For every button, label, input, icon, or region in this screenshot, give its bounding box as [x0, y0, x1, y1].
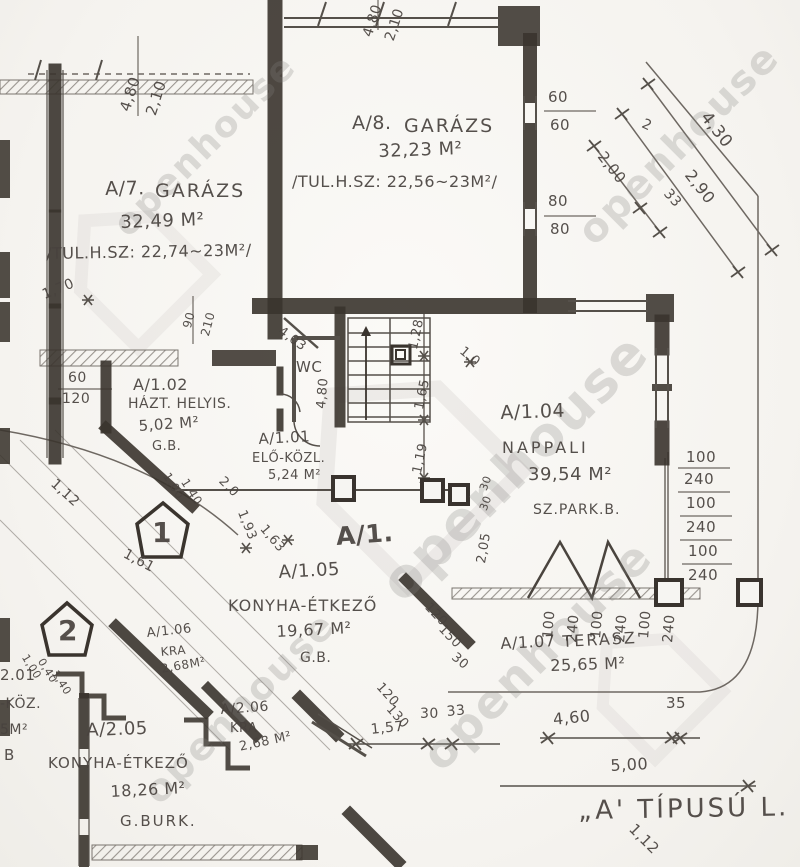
dim-right-col: 100	[688, 542, 718, 560]
dim-a8-window: 80	[548, 192, 568, 210]
marker-2: 2	[58, 614, 78, 647]
dim-35: 35	[666, 694, 686, 712]
room-a104-id: A/1.04	[500, 400, 565, 424]
dim-right-col: 240	[688, 566, 718, 584]
partial-room-area: 5M²	[0, 722, 28, 738]
room-a106-name: KRA	[160, 643, 187, 659]
partial-room-name: -KÖZ.	[0, 696, 41, 712]
room-a105-floor: G.B.	[300, 650, 331, 666]
floor-plan: openhouse openhouse openhouse openhouse …	[0, 0, 800, 867]
marker-1: 1	[152, 516, 172, 549]
dim-480: 4,80	[314, 377, 332, 409]
dim-a8-window: 60	[550, 116, 570, 134]
room-a105-name: KONYHA-ÉTKEZŐ	[228, 596, 377, 615]
room-a206-name: KRA	[230, 721, 257, 736]
dim-a8-window: 80	[550, 220, 570, 238]
dim-b30: 30	[420, 706, 439, 722]
room-a206-id: A/2.06	[220, 699, 269, 718]
dim-terrace-row: 240	[564, 614, 582, 644]
room-a104-area: 39,54 M²	[528, 464, 612, 485]
room-a8-note: /TUL.H.SZ: 22,56~23M²/	[292, 172, 497, 191]
dim-right-col: 240	[686, 518, 716, 536]
dim-b33: 33	[446, 702, 466, 720]
room-a8-area: 32,23 M²	[378, 138, 463, 162]
dim-right-col: 240	[684, 470, 714, 488]
room-a101-area: 5,24 M²	[268, 468, 321, 483]
room-a101-name: ELŐ-KÖZL.	[252, 451, 325, 466]
room-a205-name: KONYHA-ÉTKEZŐ	[48, 754, 189, 772]
dim-460: 4,60	[552, 706, 591, 729]
dim-terrace-row: 100	[540, 610, 558, 640]
room-a205-floor: G.BURK.	[120, 812, 197, 830]
room-a105-id: A/1.05	[278, 559, 340, 583]
room-a7-id: A/7.	[105, 177, 145, 200]
room-a205-id: A/2.05	[86, 718, 148, 741]
room-a205-area: 18,26 M²	[110, 778, 186, 801]
dim-terrace-row: 100	[636, 610, 654, 640]
dim-terrace-row: 240	[612, 614, 630, 644]
partial-room-floor: B	[4, 746, 15, 764]
room-a105-area: 19,67 M²	[276, 618, 352, 641]
dim-right-col: 100	[686, 448, 716, 466]
dim-a8-window: 60	[548, 88, 568, 106]
dim-500: 5,00	[610, 754, 649, 775]
unit-label: A/1.	[335, 518, 394, 551]
room-a7-area: 32,49 M²	[120, 209, 205, 233]
plan-title: „A' TÍPUSÚ L.	[578, 792, 789, 826]
room-a8-name: GARÁZS	[404, 115, 494, 137]
dim-terrace-row: 100	[588, 610, 606, 640]
room-a7-note: /TUL.H.SZ: 22,74~23M²/	[46, 240, 252, 263]
room-wc-name: WC	[296, 358, 322, 376]
dim-right-col: 100	[686, 494, 716, 512]
dim-60: 60	[68, 370, 87, 386]
room-a104-floor: SZ.PARK.B.	[533, 502, 620, 518]
room-a102-floor: G.B.	[152, 439, 181, 454]
room-a104-name: NAPPALI	[502, 438, 589, 457]
room-a101-id: A/1.01	[258, 427, 311, 448]
room-a107-area: 25,65 M²	[550, 653, 626, 675]
dim-terrace-row: 240	[660, 614, 678, 644]
room-a7-name: GARÁZS	[155, 180, 245, 202]
dim-120: 120	[62, 391, 90, 407]
room-a102-id: A/1.02	[133, 375, 188, 394]
room-a8-id: A/8.	[352, 112, 392, 134]
room-a102-name: HÁZT. HELYIS.	[128, 396, 231, 412]
